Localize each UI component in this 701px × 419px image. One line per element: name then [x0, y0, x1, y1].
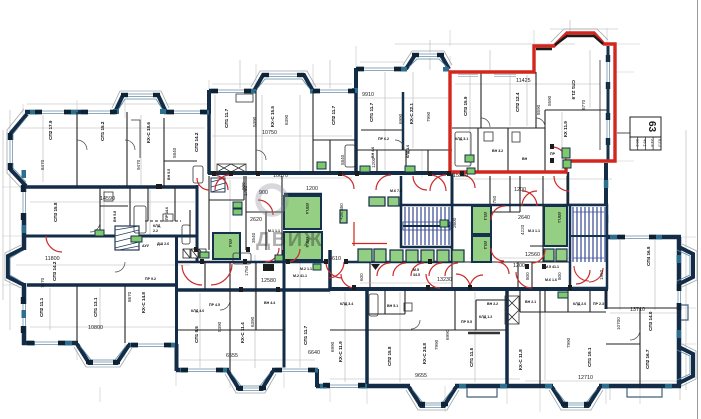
- svg-text:1750: 1750: [492, 195, 497, 206]
- svg-text:ПР 5.5: ПР 5.5: [461, 320, 472, 324]
- svg-text:2600: 2600: [452, 217, 457, 228]
- svg-text:63.3: 63.3: [658, 139, 663, 148]
- svg-text:21.9: 21.9: [650, 139, 655, 148]
- svg-text:СП3 15.8: СП3 15.8: [53, 202, 58, 222]
- svg-text:СП1 21.9: СП1 21.9: [571, 80, 576, 100]
- svg-text:КХ-С 22.1: КХ-С 22.1: [409, 103, 414, 124]
- svg-text:11800: 11800: [45, 256, 60, 262]
- svg-text:М.2 41.1: М.2 41.1: [293, 274, 307, 278]
- svg-text:ПР 2.3: ПР 2.3: [593, 302, 604, 306]
- svg-text:КХ-С 24.8: КХ-С 24.8: [422, 343, 427, 364]
- svg-text:5390: 5390: [217, 321, 222, 332]
- svg-text:7990: 7990: [566, 337, 571, 348]
- svg-text:6990: 6990: [330, 341, 335, 352]
- svg-text:ПР 14.6: ПР 14.6: [165, 207, 169, 220]
- svg-text:9470: 9470: [136, 159, 141, 170]
- svg-text:ВН 2.2: ВН 2.2: [487, 302, 498, 306]
- svg-text:11425: 11425: [516, 78, 531, 84]
- svg-text:13710: 13710: [630, 307, 645, 313]
- svg-text:КХ-С 18.6: КХ-С 18.6: [146, 122, 151, 143]
- svg-text:ЛПП-4: ЛПП-4: [305, 203, 309, 214]
- svg-text:7670: 7670: [40, 277, 45, 288]
- svg-text:10670: 10670: [273, 173, 288, 179]
- svg-text:12710: 12710: [578, 375, 593, 381]
- svg-text:50.2: 50.2: [635, 139, 640, 148]
- svg-text:СП3 14.2: СП3 14.2: [52, 261, 57, 281]
- svg-text:8670: 8670: [127, 291, 132, 302]
- svg-text:5840: 5840: [340, 154, 345, 165]
- svg-text:СП2 11.7: СП2 11.7: [331, 105, 336, 125]
- svg-text:800: 800: [557, 272, 562, 280]
- svg-text:КЛД 3.4: КЛД 3.4: [340, 302, 353, 306]
- svg-text:ВН 3.2: ВН 3.2: [492, 149, 503, 153]
- svg-text:8470: 8470: [40, 159, 45, 170]
- svg-text:СП3 14.0: СП3 14.0: [648, 311, 653, 331]
- svg-text:ЛП-3: ЛП-3: [483, 212, 487, 220]
- svg-text:КЛД 3.1: КЛД 3.1: [455, 137, 468, 141]
- svg-text:КЛД 1.6: КЛД 1.6: [406, 145, 410, 158]
- svg-text:ЛПП-1: ЛПП-1: [557, 212, 561, 223]
- svg-text:ПР 6.2: ПР 6.2: [378, 137, 389, 141]
- svg-text:13230: 13230: [437, 277, 452, 283]
- svg-text:СП1 13.1: СП1 13.1: [93, 297, 98, 317]
- svg-text:СП4 16.9: СП4 16.9: [646, 246, 651, 266]
- svg-text:СП1 19.1: СП1 19.1: [587, 347, 592, 367]
- svg-text:СП1 11.7: СП1 11.7: [369, 102, 374, 122]
- svg-text:СП2 12.4: СП2 12.4: [515, 92, 520, 112]
- svg-text:6990: 6990: [398, 113, 403, 124]
- svg-text:КХ-С 11.4: КХ-С 11.4: [240, 322, 245, 343]
- svg-text:СП1 15.2: СП1 15.2: [100, 121, 105, 141]
- svg-text:КХ-С 14.8: КХ-С 14.8: [141, 292, 146, 313]
- svg-text:800: 800: [525, 272, 530, 280]
- svg-text:М.6 1.6: М.6 1.6: [545, 278, 557, 282]
- svg-text:34.5: 34.5: [413, 273, 420, 277]
- svg-text:5840: 5840: [172, 147, 177, 158]
- svg-text:М.5: М.5: [413, 268, 419, 272]
- svg-text:3540: 3540: [251, 232, 256, 243]
- svg-text:СП2 14.2: СП2 14.2: [194, 132, 199, 152]
- svg-text:КХ-С 15.5: КХ-С 15.5: [270, 106, 275, 127]
- svg-text:9655: 9655: [415, 373, 427, 379]
- svg-text:1950: 1950: [599, 269, 604, 280]
- svg-text:М.3 1.1: М.3 1.1: [528, 229, 540, 233]
- svg-text:ВН 5.1: ВН 5.1: [387, 304, 398, 308]
- svg-text:1750: 1750: [244, 265, 249, 276]
- svg-text:ВН 4.6: ВН 4.6: [371, 147, 375, 158]
- svg-text:600: 600: [359, 273, 364, 281]
- svg-text:ВН 2.1: ВН 2.1: [525, 300, 536, 304]
- svg-text:6555: 6555: [226, 353, 238, 359]
- svg-text:8590: 8590: [536, 104, 541, 115]
- svg-text:1750: 1750: [243, 185, 248, 196]
- svg-text:9910: 9910: [362, 92, 374, 98]
- svg-text:6640: 6640: [308, 350, 320, 356]
- svg-text:ПР: ПР: [550, 152, 556, 156]
- svg-text:7990: 7990: [434, 339, 439, 350]
- svg-text:2.2: 2.2: [153, 229, 158, 233]
- svg-text:5590: 5590: [547, 95, 552, 106]
- svg-text:900: 900: [259, 190, 268, 196]
- svg-text:5390: 5390: [252, 116, 257, 127]
- svg-text:М.2 1.1: М.2 1.1: [300, 267, 312, 271]
- svg-text:ВН 5.5: ВН 5.5: [167, 169, 171, 180]
- svg-text:АУУ: АУУ: [142, 244, 150, 248]
- svg-text:ПР 4.5: ПР 4.5: [209, 303, 220, 307]
- svg-text:КХ 11.9: КХ 11.9: [563, 121, 568, 137]
- svg-text:КЛД: КЛД: [153, 224, 161, 228]
- svg-text:СП1 11.7: СП1 11.7: [224, 108, 229, 128]
- svg-text:10700: 10700: [616, 317, 621, 330]
- svg-text:СП2 15.8: СП2 15.8: [387, 346, 392, 366]
- svg-text:ДВИЖ: ДВИЖ: [256, 229, 323, 251]
- svg-text:М.5 41.1: М.5 41.1: [545, 265, 559, 269]
- svg-text:СП3 15.9: СП3 15.9: [463, 96, 468, 116]
- svg-text:12560: 12560: [525, 252, 540, 258]
- svg-text:КЛД 1.2: КЛД 1.2: [479, 315, 492, 319]
- svg-text:49.1: 49.1: [643, 139, 648, 148]
- svg-text:4220: 4220: [520, 224, 525, 235]
- svg-text:6990: 6990: [445, 329, 450, 340]
- svg-text:8770: 8770: [581, 99, 586, 110]
- svg-text:ВН: ВН: [522, 157, 528, 161]
- svg-text:ПР 9.2: ПР 9.2: [145, 277, 156, 281]
- svg-text:10750: 10750: [262, 130, 277, 136]
- svg-text:КЛД 4.0: КЛД 4.0: [191, 309, 204, 313]
- svg-text:ДШ 2.6: ДШ 2.6: [157, 242, 169, 246]
- svg-text:6390: 6390: [250, 316, 255, 327]
- svg-text:ЛП-6: ЛП-6: [228, 239, 232, 247]
- svg-text:10800: 10800: [88, 325, 103, 331]
- svg-text:ЛП-2: ЛП-2: [483, 241, 487, 249]
- svg-text:М.1 1.1: М.1 1.1: [268, 229, 280, 233]
- svg-text:1200: 1200: [514, 187, 526, 193]
- svg-text:14590: 14590: [100, 196, 115, 202]
- svg-text:ВН 5.8: ВН 5.8: [113, 211, 117, 222]
- svg-text:КХ-С 11.9: КХ-С 11.9: [338, 341, 343, 362]
- svg-text:КЛД 2.6: КЛД 2.6: [573, 302, 586, 306]
- svg-text:СП2 17.9: СП2 17.9: [48, 120, 53, 140]
- svg-text:3610: 3610: [329, 256, 341, 262]
- svg-text:КХ-С 11.8: КХ-С 11.8: [518, 349, 523, 370]
- svg-text:1200: 1200: [306, 186, 318, 192]
- svg-text:2640: 2640: [518, 215, 530, 221]
- svg-text:7990: 7990: [426, 111, 431, 122]
- svg-text:СП2 11.1: СП2 11.1: [39, 297, 44, 317]
- svg-text:2620: 2620: [250, 217, 262, 223]
- svg-text:6390: 6390: [284, 114, 289, 125]
- svg-text:12580: 12580: [261, 278, 276, 284]
- svg-text:СП1 11.7: СП1 11.7: [303, 325, 308, 345]
- svg-text:СП2 16.7: СП2 16.7: [645, 349, 650, 369]
- svg-text:СП1 11.5: СП1 11.5: [469, 347, 474, 367]
- svg-text:63: 63: [646, 121, 657, 133]
- svg-text:1200: 1200: [513, 263, 525, 269]
- svg-text:ВН 4.4: ВН 4.4: [264, 301, 275, 305]
- svg-text:+26.850: +26.850: [339, 203, 344, 220]
- svg-text:М.6 7.3: М.6 7.3: [390, 189, 402, 193]
- svg-text:СП1 9.5: СП1 9.5: [194, 326, 199, 343]
